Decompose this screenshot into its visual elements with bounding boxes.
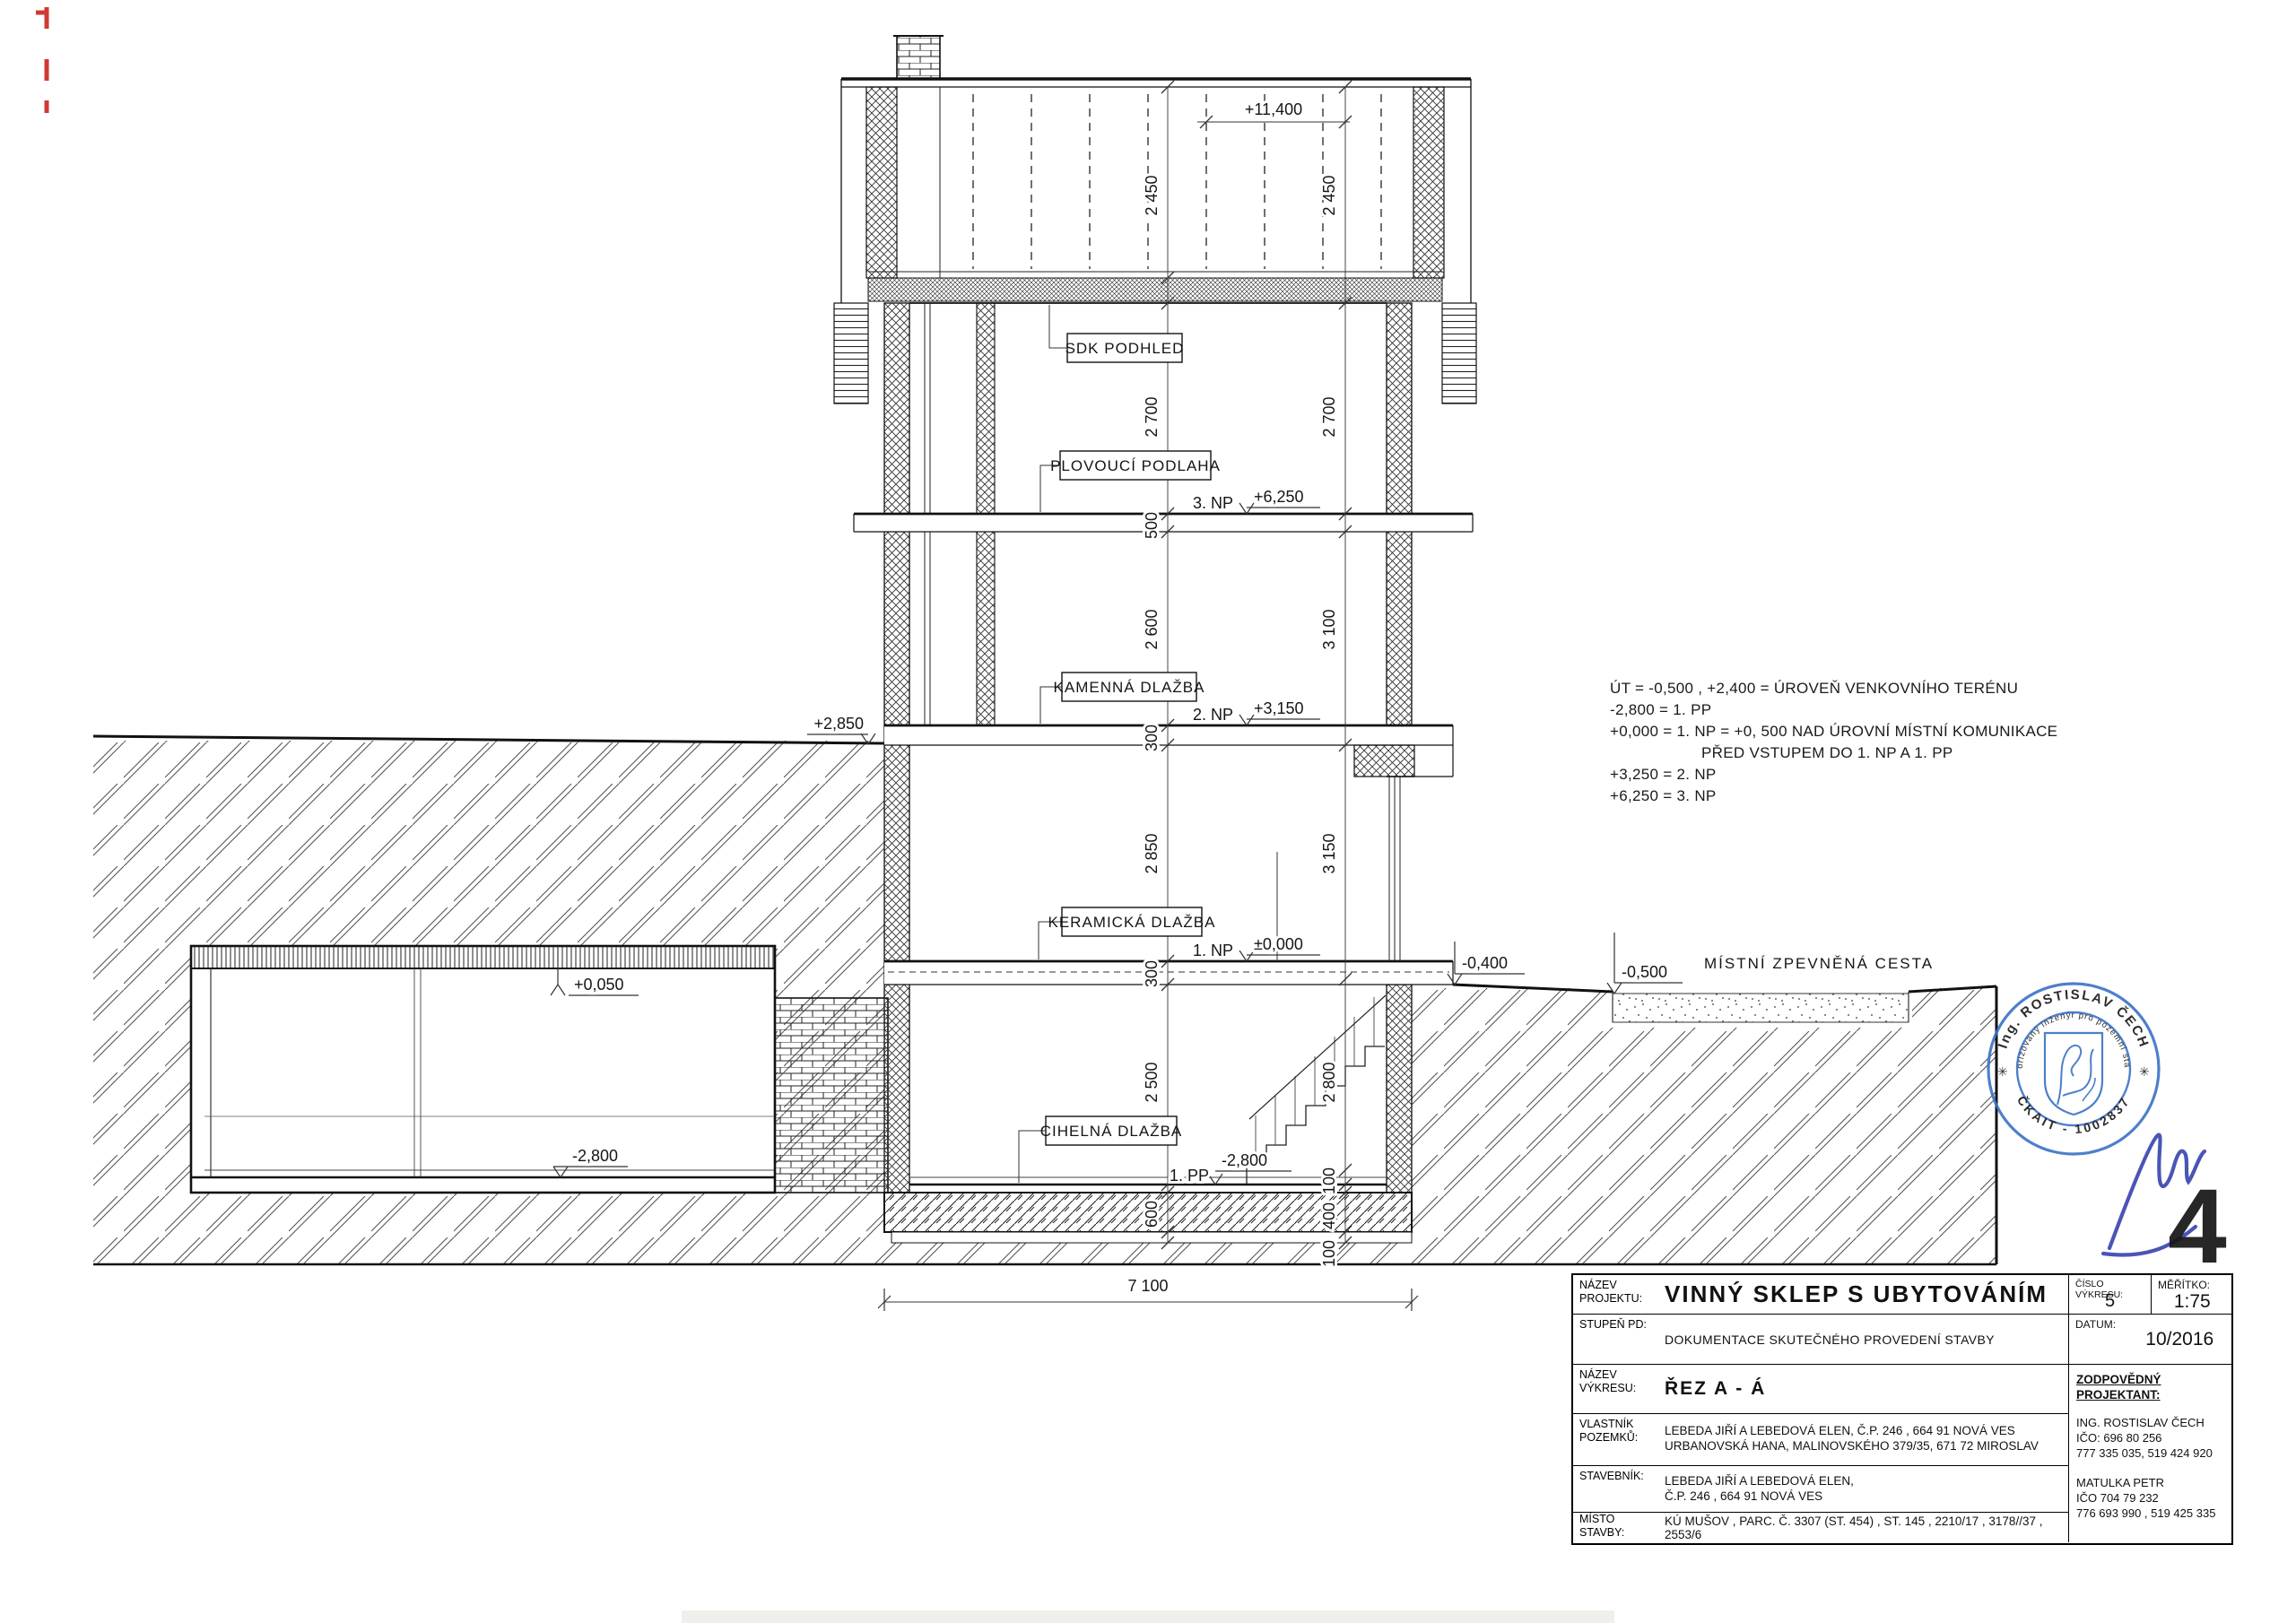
- glazed-door-right: [1387, 777, 1414, 961]
- paved-road: [1613, 992, 1909, 1022]
- label-ceiling3: SDK PODHLED: [1065, 340, 1185, 357]
- project-title: VINNÝ SKLEP S UBYTOVÁNÍM: [1665, 1275, 2065, 1314]
- door-lintel: [1354, 745, 1414, 777]
- level-np1: ±0,000: [1254, 935, 1303, 953]
- date-value: 10/2016: [2132, 1315, 2228, 1364]
- tag-np1: 1. NP: [1193, 942, 1233, 959]
- designer1-phones: 777 335 035, 519 424 920: [2076, 1445, 2230, 1461]
- drawing-name: ŘEZ A - Á: [1665, 1365, 2065, 1413]
- scan-edge-shadow: [682, 1610, 1614, 1623]
- slab-1np: [884, 961, 1453, 985]
- tag-np3: 3. NP: [1193, 494, 1233, 512]
- designer1-ico: IČO: 696 80 256: [2076, 1430, 2230, 1445]
- designer2-phones: 776 693 990 , 519 425 335: [2076, 1506, 2230, 1521]
- label-floor3: PLOVOUCÍ PODLAHA: [1050, 457, 1221, 474]
- dim-slab3: 500: [1143, 512, 1161, 539]
- scan-artifact-marks: [36, 7, 47, 113]
- date-label: DATUM:: [2075, 1318, 2116, 1331]
- label-floor1: KERAMICKÁ DLAŽBA: [1048, 914, 1216, 931]
- eaves-soffit-left: [834, 303, 868, 404]
- dim-attic-right: 2 450: [1320, 175, 1338, 215]
- dim-f3-right: 2 700: [1320, 396, 1338, 437]
- level-pp1: -2,800: [1222, 1151, 1267, 1169]
- levels-legend: ÚT = -0,500 , +2,400 = ÚROVEŇ VENKOVNÍHO…: [1610, 678, 2058, 807]
- stage-label: STUPEŇ PD:: [1579, 1318, 1657, 1332]
- scanned-drawing-sheet: +11,400 2 450 2 450 2 700 2 700 500 2 60…: [0, 0, 2296, 1623]
- dim-attic-left: 2 450: [1143, 175, 1161, 215]
- responsible-designer-label: ZODPOVĚDNÝ PROJEKTANT:: [2076, 1372, 2230, 1402]
- level-terrain-left: +2,850: [813, 715, 864, 733]
- owner-line2: URBANOVSKÁ HANA, MALINOVSKÉHO 379/35, 67…: [1665, 1438, 2065, 1454]
- dim-base: 600: [1143, 1201, 1161, 1228]
- builder-label: STAVEBNÍK:: [1579, 1470, 1657, 1483]
- legend-line-1: ÚT = -0,500 , +2,400 = ÚROVEŇ VENKOVNÍHO…: [1610, 678, 2058, 699]
- dim-top: +11,400: [1245, 100, 1302, 118]
- dim-f3-left: 2 700: [1143, 396, 1161, 437]
- designer-2: MATULKA PETR IČO 704 79 232 776 693 990 …: [2076, 1475, 2230, 1521]
- stamp-star-right: ✳: [2139, 1064, 2150, 1079]
- brick-tunnel-wall: [775, 998, 888, 1193]
- level-np3: +6,250: [1254, 488, 1304, 506]
- dim-width: 7 100: [1127, 1277, 1168, 1295]
- scale-value: 1:75: [2152, 1289, 2233, 1314]
- dim-slab2: 300: [1143, 725, 1161, 751]
- level-np2: +3,150: [1254, 699, 1304, 717]
- dim-base-right: 400: [1320, 1202, 1338, 1229]
- site-label: MÍSTO STAVBY:: [1579, 1513, 1657, 1540]
- exterior-wall-left: [884, 303, 909, 1193]
- level-cellar-floor: -2,800: [572, 1147, 618, 1165]
- blue-stamp-number: 4: [2168, 1167, 2227, 1286]
- builder-line2: Č.P. 246 , 664 91 NOVÁ VES: [1665, 1488, 2065, 1504]
- dim-pp-floor: 100: [1320, 1167, 1338, 1194]
- cellar-lintel-band: [191, 946, 775, 968]
- label-floor0: CIHELNÁ DLAŽBA: [1040, 1123, 1183, 1140]
- dim-pp-left: 2 500: [1143, 1062, 1161, 1102]
- legend-line-2: -2,800 = 1. PP: [1610, 699, 2058, 721]
- label-floor2: KAMENNÁ DLAŽBA: [1054, 679, 1205, 696]
- level-ext-near: -0,400: [1462, 954, 1508, 972]
- dim-f1-left: 2 850: [1143, 833, 1161, 873]
- dim-lean: 100: [1320, 1240, 1338, 1267]
- eaves-soffit-right: [1442, 303, 1476, 404]
- title-block: NÁZEV PROJEKTU: VINNÝ SKLEP S UBYTOVÁNÍM…: [1571, 1273, 2233, 1545]
- stamp-lion-shield: [2045, 1033, 2102, 1115]
- attic-wall-left: [866, 87, 897, 278]
- dim-slab1: 300: [1143, 960, 1161, 987]
- drawing-name-label: NÁZEV VÝKRESU:: [1579, 1368, 1657, 1395]
- owner-label: VLASTNÍK POZEMKŮ:: [1579, 1418, 1657, 1445]
- designer1-name: ING. ROSTISLAV ČECH: [2076, 1415, 2230, 1430]
- stamp-star-left: ✳: [1997, 1064, 2008, 1079]
- wine-cellar: [191, 946, 775, 1193]
- site-value: KÚ MUŠOV , PARC. Č. 3307 (ST. 454) , ST.…: [1665, 1513, 2065, 1542]
- drawing-number: 5: [2069, 1289, 2151, 1314]
- dim-f1-right: 3 150: [1320, 833, 1338, 873]
- slab-3np: [854, 514, 1473, 532]
- builder-line1: LEBEDA JIŘÍ A LEBEDOVÁ ELEN,: [1665, 1473, 2065, 1488]
- road-label: MÍSTNÍ ZPEVNĚNÁ CESTA: [1704, 955, 1934, 972]
- designer2-name: MATULKA PETR: [2076, 1475, 2230, 1490]
- dim-f2-right: 3 100: [1320, 609, 1338, 649]
- level-cellar-top: +0,050: [574, 976, 624, 994]
- dim-f2-left: 2 600: [1143, 609, 1161, 649]
- title-block-project-label: NÁZEV PROJEKTU:: [1579, 1279, 1657, 1306]
- legend-line-3: +0,000 = 1. NP = +0, 500 NAD ÚROVNÍ MÍST…: [1610, 721, 2058, 742]
- tag-np2: 2. NP: [1193, 706, 1233, 724]
- attic-wall-right: [1413, 87, 1444, 278]
- owner-line1: LEBEDA JIŘÍ A LEBEDOVÁ ELEN, Č.P. 246 , …: [1665, 1423, 2065, 1438]
- attic-floor-insulation: [868, 278, 1442, 301]
- dim-pp-right: 2 800: [1320, 1062, 1338, 1102]
- level-ext-road: -0,500: [1622, 963, 1667, 981]
- legend-line-6: +6,250 = 3. NP: [1610, 785, 2058, 807]
- exterior-wall-right-basement: [1387, 985, 1412, 1193]
- legend-line-4: PŘED VSTUPEM DO 1. NP A 1. PP: [1610, 742, 2058, 764]
- designer-1: ING. ROSTISLAV ČECH IČO: 696 80 256 777 …: [2076, 1415, 2230, 1461]
- tag-pp1: 1. PP: [1170, 1167, 1209, 1185]
- stage-value: DOKUMENTACE SKUTEČNÉHO PROVEDENÍ STAVBY: [1665, 1315, 2065, 1364]
- legend-line-5: +3,250 = 2. NP: [1610, 764, 2058, 785]
- designer2-ico: IČO 704 79 232: [2076, 1490, 2230, 1506]
